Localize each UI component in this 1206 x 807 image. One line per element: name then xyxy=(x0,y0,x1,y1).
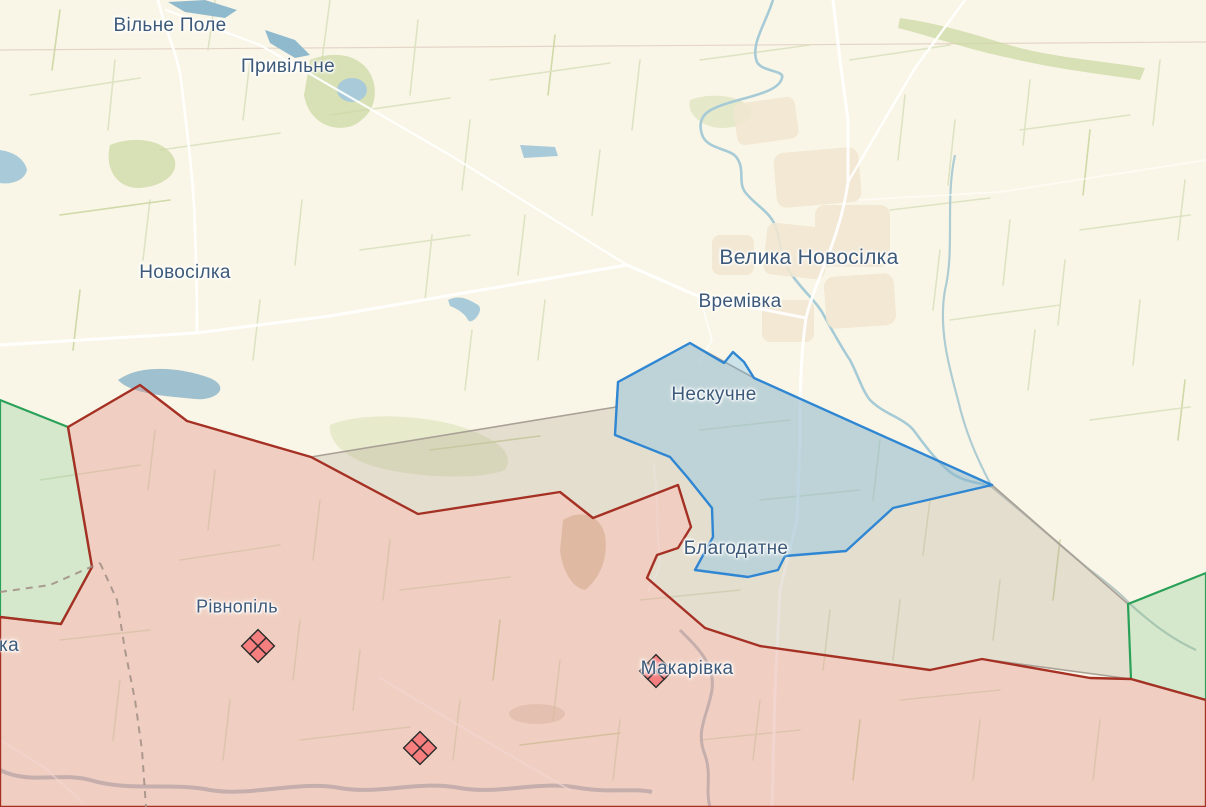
basemap-svg xyxy=(0,0,1206,807)
map-canvas[interactable]: Вільне Поле Привільне Новосілка Велика Н… xyxy=(0,0,1206,807)
